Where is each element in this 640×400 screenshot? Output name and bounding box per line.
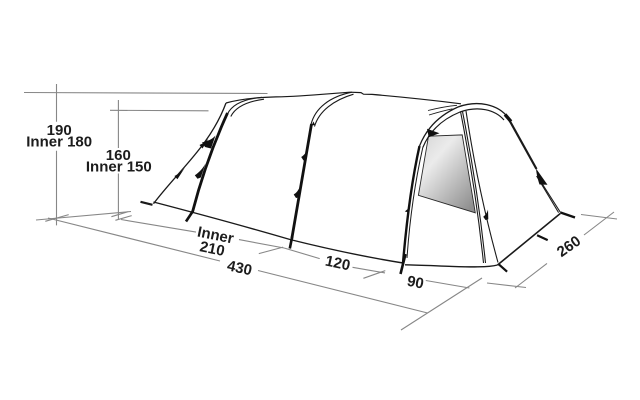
svg-text:Inner 150: Inner 150 [86, 158, 152, 175]
svg-text:260: 260 [554, 233, 584, 261]
svg-text:120: 120 [324, 253, 352, 275]
svg-text:90: 90 [406, 273, 426, 293]
svg-text:Inner 180: Inner 180 [26, 133, 92, 150]
svg-text:430: 430 [225, 257, 253, 279]
